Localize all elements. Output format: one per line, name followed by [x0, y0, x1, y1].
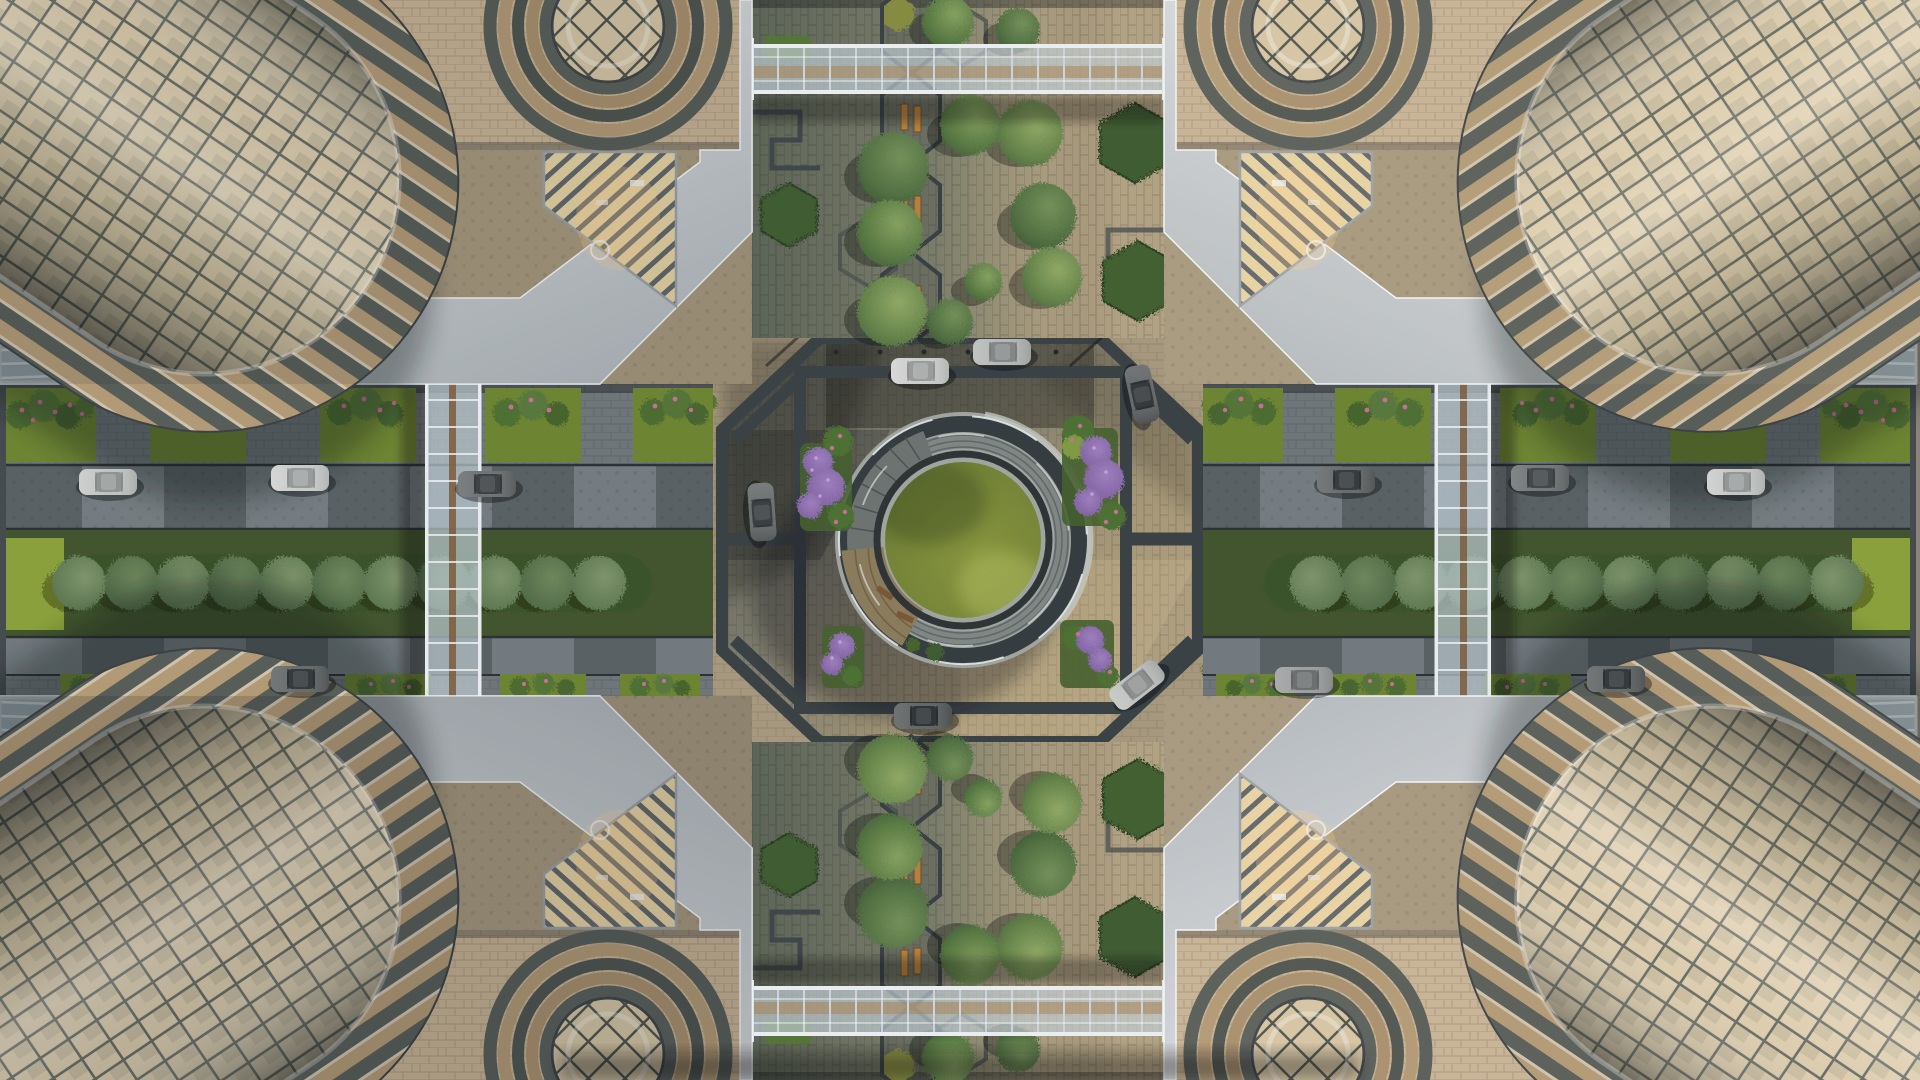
mall-north	[740, 0, 1176, 349]
render-stage	[0, 0, 1920, 1080]
car-1	[76, 469, 144, 501]
car-9	[891, 703, 959, 735]
car-2	[268, 465, 336, 497]
car-6	[970, 339, 1038, 371]
car-5	[888, 358, 956, 390]
car-11	[1314, 467, 1382, 499]
car-13	[1704, 469, 1772, 501]
car-12	[1508, 465, 1576, 497]
mall-south	[740, 731, 1176, 1080]
car-15	[1272, 667, 1340, 699]
car-14	[1584, 666, 1652, 698]
aerial-plaza-render	[0, 0, 1920, 1080]
car-3	[455, 471, 523, 503]
car-4	[268, 666, 336, 698]
